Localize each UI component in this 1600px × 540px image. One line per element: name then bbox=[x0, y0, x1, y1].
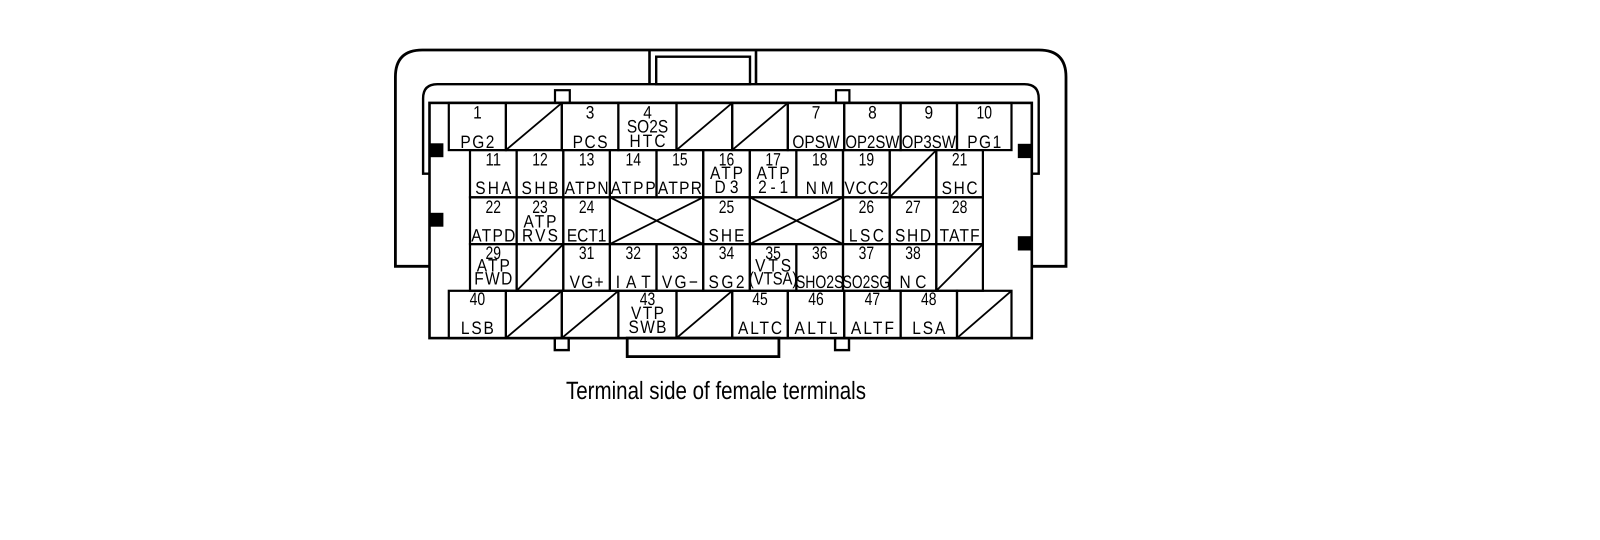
svg-text:45: 45 bbox=[752, 289, 767, 309]
svg-text:47: 47 bbox=[865, 289, 880, 309]
svg-text:LSA: LSA bbox=[912, 318, 945, 338]
svg-text:ALTF: ALTF bbox=[851, 318, 894, 338]
svg-text:10: 10 bbox=[976, 103, 991, 123]
svg-text:SHA: SHA bbox=[475, 178, 511, 198]
svg-text:37: 37 bbox=[859, 243, 874, 263]
svg-text:1: 1 bbox=[473, 103, 482, 123]
svg-text:HTC: HTC bbox=[630, 131, 666, 151]
svg-text:VG−: VG− bbox=[662, 272, 698, 292]
svg-text:19: 19 bbox=[859, 150, 874, 170]
svg-text:TATF: TATF bbox=[940, 226, 980, 246]
svg-text:SG2: SG2 bbox=[709, 272, 745, 292]
svg-text:FWD: FWD bbox=[474, 269, 512, 289]
svg-text:2-1: 2-1 bbox=[758, 177, 788, 197]
svg-text:21: 21 bbox=[952, 150, 967, 170]
svg-text:22: 22 bbox=[486, 197, 501, 217]
svg-text:LSB: LSB bbox=[461, 318, 494, 338]
svg-text:26: 26 bbox=[859, 197, 874, 217]
svg-text:27: 27 bbox=[905, 197, 920, 217]
svg-text:ATPR: ATPR bbox=[658, 178, 702, 198]
svg-text:7: 7 bbox=[812, 103, 821, 123]
svg-text:11: 11 bbox=[486, 150, 501, 170]
svg-text:32: 32 bbox=[625, 243, 640, 263]
svg-text:(VTSA): (VTSA) bbox=[749, 269, 798, 289]
svg-text:25: 25 bbox=[719, 197, 734, 217]
svg-text:24: 24 bbox=[579, 197, 594, 217]
svg-text:48: 48 bbox=[921, 289, 936, 309]
svg-text:14: 14 bbox=[625, 150, 640, 170]
svg-text:12: 12 bbox=[532, 150, 547, 170]
svg-text:ALTC: ALTC bbox=[738, 318, 782, 338]
svg-text:18: 18 bbox=[812, 150, 827, 170]
svg-text:RVS: RVS bbox=[522, 226, 558, 246]
svg-text:36: 36 bbox=[812, 243, 827, 263]
svg-text:3: 3 bbox=[586, 103, 595, 123]
svg-text:VCC2: VCC2 bbox=[844, 178, 888, 198]
svg-text:15: 15 bbox=[672, 150, 687, 170]
svg-text:SHB: SHB bbox=[522, 178, 559, 198]
svg-text:SHC: SHC bbox=[942, 178, 978, 198]
svg-text:9: 9 bbox=[924, 103, 933, 123]
svg-text:8: 8 bbox=[868, 103, 877, 123]
svg-text:Terminal side of female termin: Terminal side of female terminals bbox=[566, 377, 866, 405]
svg-text:VG+: VG+ bbox=[570, 272, 604, 292]
svg-text:33: 33 bbox=[672, 243, 687, 263]
svg-text:46: 46 bbox=[808, 289, 823, 309]
svg-text:34: 34 bbox=[719, 243, 734, 263]
svg-text:40: 40 bbox=[470, 289, 485, 309]
svg-text:38: 38 bbox=[905, 243, 920, 263]
svg-text:13: 13 bbox=[579, 150, 594, 170]
svg-text:28: 28 bbox=[952, 197, 967, 217]
svg-text:ATPN: ATPN bbox=[565, 178, 609, 198]
svg-text:NM: NM bbox=[806, 178, 834, 198]
svg-text:ATPP: ATPP bbox=[611, 178, 656, 198]
svg-text:31: 31 bbox=[579, 243, 594, 263]
svg-text:SWB: SWB bbox=[628, 317, 666, 337]
svg-text:ALTL: ALTL bbox=[795, 318, 838, 338]
